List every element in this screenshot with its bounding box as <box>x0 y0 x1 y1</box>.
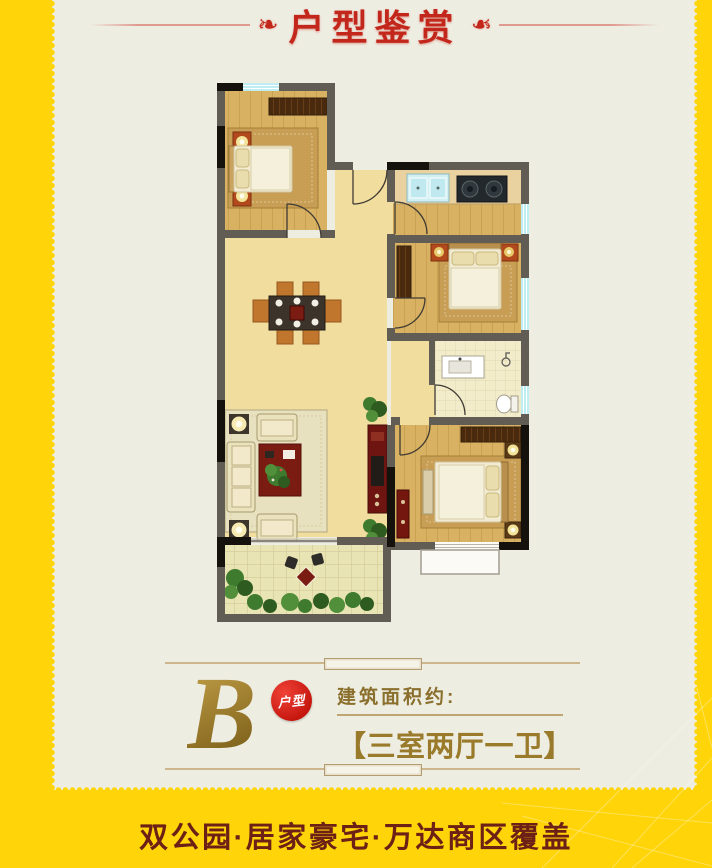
frame-strip-right <box>697 0 712 868</box>
divider-center-box <box>324 764 422 776</box>
sink-icon <box>407 174 449 202</box>
window-icon <box>521 386 529 414</box>
bed-icon <box>435 462 508 522</box>
area-underline <box>337 714 563 716</box>
coffee-table-icon <box>259 444 301 496</box>
floor-plan-drawing <box>195 70 560 630</box>
wardrobe-icon <box>269 98 327 115</box>
header: ❧ 户型鉴赏 ❧ <box>52 2 697 48</box>
wardrobe-icon <box>461 427 521 442</box>
vanity-sink-icon <box>442 356 484 378</box>
area-label: 建筑面积约: <box>337 682 572 709</box>
property-poster: ❧ 户型鉴赏 ❧ <box>0 0 712 868</box>
unit-info-section: B 户型 建筑面积约: 【三室两厅一卫】 <box>165 660 580 772</box>
unit-letter-block: B 户型 <box>187 668 256 760</box>
room-entry-foyer <box>335 170 393 238</box>
floral-ornament-left-icon: ❧ <box>258 13 279 38</box>
stove-icon <box>457 176 507 202</box>
divider-bottom <box>165 768 580 770</box>
tv-icon <box>371 456 384 486</box>
title-rule-right <box>499 24 659 26</box>
frame-strip-left <box>0 0 52 868</box>
unit-area-block: 建筑面积约: 【三室两厅一卫】 <box>337 682 572 765</box>
bench-icon <box>423 470 433 514</box>
bay-window <box>421 550 499 574</box>
unit-letter: B <box>187 656 256 771</box>
window-icon <box>435 542 499 550</box>
kitchen-fixtures <box>407 174 507 202</box>
page-title: 户型鉴赏 <box>289 0 461 51</box>
floral-ornament-right-icon: ❧ <box>471 13 492 38</box>
title-rule-left <box>90 24 250 26</box>
layout-value: 【三室两厅一卫】 <box>337 723 572 765</box>
sofa-set-icon <box>225 410 327 541</box>
bed-icon <box>449 243 501 309</box>
window-icon <box>521 278 529 330</box>
divider-center-box <box>324 658 422 670</box>
floor-plan <box>195 70 560 630</box>
window-icon <box>521 204 529 234</box>
window-icon <box>243 83 279 91</box>
toilet-icon <box>497 395 519 413</box>
wardrobe-icon <box>397 246 411 298</box>
footer-slogan: 双公园·居家豪宅·万达商区覆盖 <box>0 814 712 856</box>
bed-icon <box>229 146 292 192</box>
dresser-icon <box>397 490 409 538</box>
unit-type-badge: 户型 <box>269 678 314 723</box>
room-hallway <box>391 341 435 425</box>
